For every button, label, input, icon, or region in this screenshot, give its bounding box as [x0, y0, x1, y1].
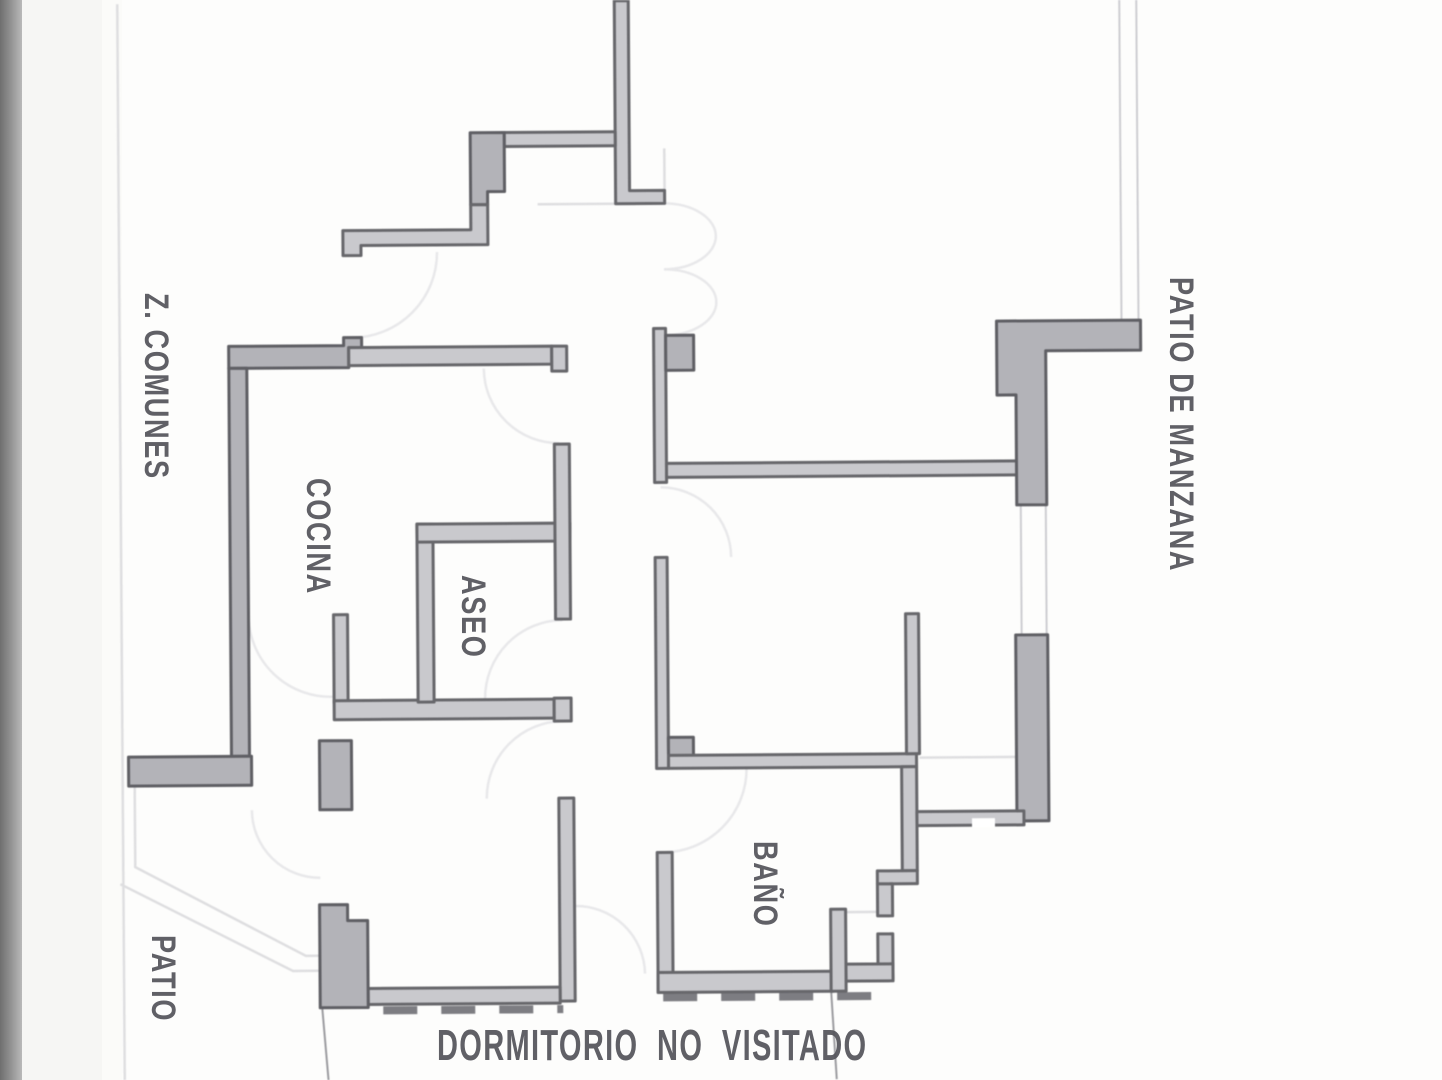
label-dormitorio-no-visitado: DORMITORIO NO VISITADO	[437, 1021, 867, 1071]
window-right-upper-a	[1021, 503, 1022, 637]
wall-gallery-bottom	[917, 811, 1024, 826]
wall-entry-step	[343, 205, 488, 256]
door-arc-dormitorio	[486, 721, 564, 799]
wall-top-vertical	[614, 0, 664, 203]
wall-bath-right-step	[877, 871, 917, 884]
lintel-line-gallery	[920, 757, 1020, 758]
wall-dormitorio-bottom	[368, 987, 560, 1004]
wall-right-lower-thick	[1016, 635, 1049, 821]
floor-plan-scan: Z. COMUNES PATIO DE MANZANA COCINA ASEO …	[0, 0, 1442, 1080]
window-right-upper-b	[1046, 503, 1047, 637]
door-arc-double-top	[664, 203, 716, 269]
wall-kitchen-top-thick	[229, 338, 362, 369]
window-top-right-a	[1119, 0, 1121, 320]
door-arc-aseo	[485, 620, 564, 699]
dashed-wall-dormitorio-right	[663, 996, 891, 998]
wall-corridor-bottom	[334, 699, 554, 720]
wall-kitchen-right	[334, 615, 349, 703]
wall-hall-left-mid	[655, 557, 668, 768]
door-arc-kitchen	[484, 368, 560, 444]
wall-kitchen-top-arm	[349, 346, 552, 365]
door-arc-double-bottom	[664, 269, 716, 335]
wall-aseo-right	[554, 444, 570, 619]
door-arc-kitchen-lower	[249, 615, 335, 698]
wall-corridor-jamb	[554, 698, 571, 721]
window-top-right-b	[1136, 0, 1138, 320]
door-arc-patio-kitchen	[252, 810, 320, 878]
wall-kitchen-left	[229, 368, 250, 756]
wall-bath-top	[669, 754, 917, 769]
wall-bath-door-jamb	[831, 909, 847, 991]
wall-bath-right-lower-a	[877, 884, 892, 916]
wall-bath-bottom-right	[846, 964, 893, 981]
dashed-wall-dormitorio-left	[383, 1009, 563, 1010]
wall-gallery-mid	[906, 614, 920, 754]
label-patio-de-manzana: PATIO DE MANZANA	[1161, 277, 1200, 572]
door-arc-vestibule	[575, 906, 645, 974]
door-arc-bath-hall	[663, 768, 748, 853]
wall-top-pier	[470, 133, 505, 205]
wall-top-arm	[504, 132, 615, 147]
wall-aseo-left	[417, 524, 434, 702]
pier-kitchen-patio-door	[319, 741, 351, 810]
wall-right-upper-thick	[996, 320, 1141, 505]
label-patio: PATIO	[143, 935, 182, 1022]
door-arc-entrance	[352, 252, 438, 338]
page-edge-line	[117, 4, 125, 1080]
pier-hall-left-upper	[666, 335, 694, 370]
pier-patio-corner	[320, 904, 369, 1007]
wall-bath-right	[902, 767, 918, 871]
label-bano: BAÑO	[745, 841, 784, 927]
door-arc-hall	[661, 487, 731, 557]
wall-kitchen-top-jamb	[552, 346, 567, 371]
wall-bath-bottom	[658, 971, 833, 992]
label-z-comunes: Z. COMUNES	[136, 293, 175, 480]
wall-living-top	[666, 461, 1021, 477]
wall-zcomunes-bottom	[129, 756, 252, 786]
wall-dormitorio-right	[559, 798, 575, 1001]
leader-line-left	[322, 1008, 329, 1080]
wall-aseo-top	[417, 523, 570, 542]
floor-plan-drawing	[0, 0, 1442, 1080]
label-aseo: ASEO	[453, 575, 492, 658]
opening-gallery-bottom	[972, 818, 995, 827]
label-cocina: COCINA	[298, 478, 337, 595]
